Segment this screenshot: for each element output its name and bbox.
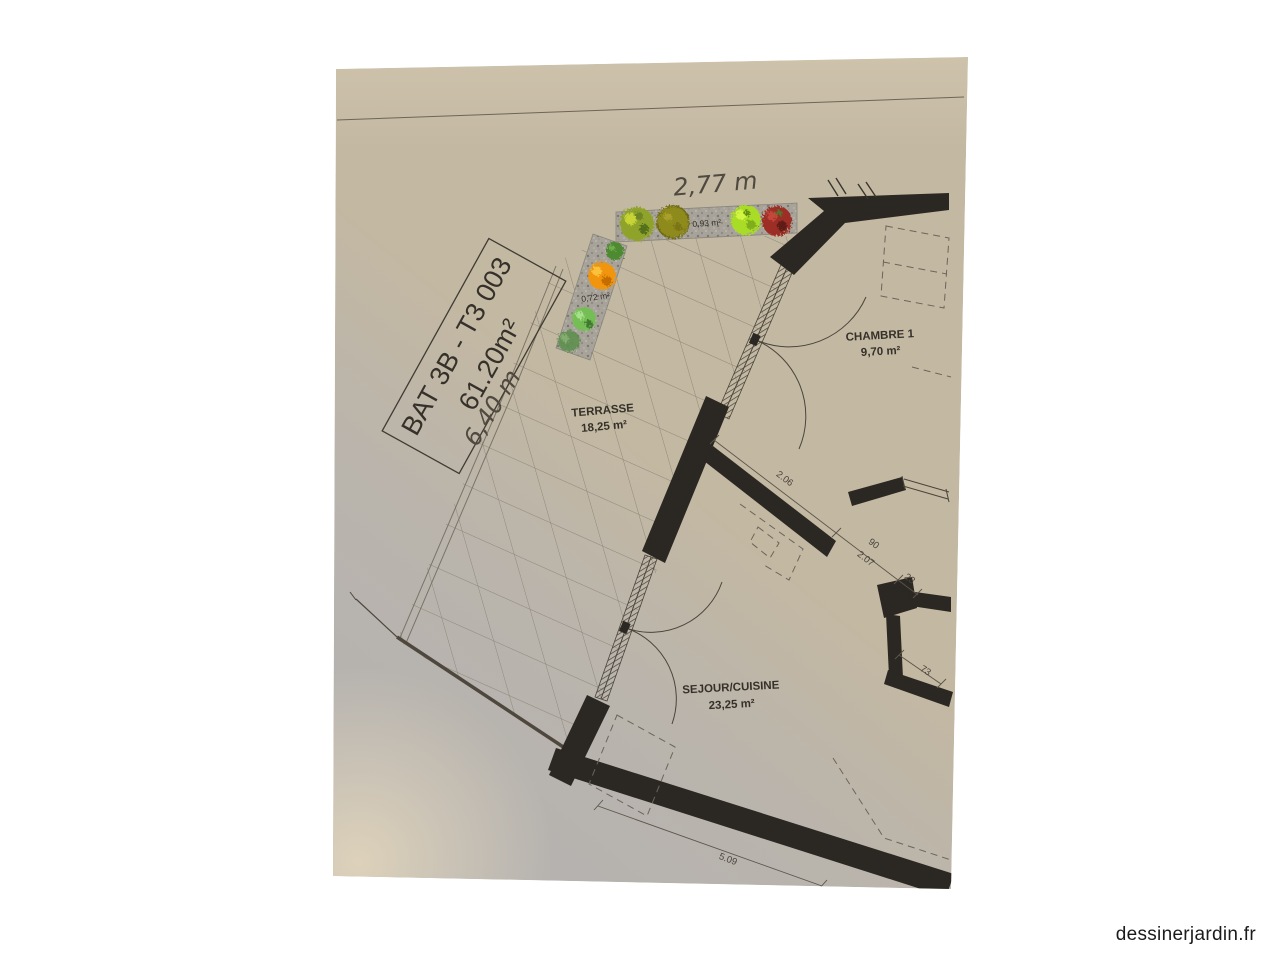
plant-darkgreen-icon bbox=[558, 330, 580, 352]
plant-small-green-icon bbox=[606, 242, 624, 260]
svg-text:23,25 m²: 23,25 m² bbox=[708, 698, 755, 712]
plant-tree-icon bbox=[657, 206, 689, 238]
plant-spiky-icon bbox=[731, 205, 761, 235]
plant-lightgreen-icon bbox=[572, 307, 596, 331]
page: 2.06 90 2.07 23 73 5.09 TERRASSE 18,25 m… bbox=[0, 0, 1280, 960]
plant-red-icon bbox=[762, 206, 792, 236]
svg-text:9,70 m²: 9,70 m² bbox=[861, 345, 901, 359]
watermark: dessinerjardin.fr bbox=[1116, 924, 1256, 946]
floorplan-photo: 2.06 90 2.07 23 73 5.09 TERRASSE 18,25 m… bbox=[0, 0, 1280, 960]
plant-orange-icon bbox=[588, 262, 616, 290]
paper-sheet: 2.06 90 2.07 23 73 5.09 TERRASSE 18,25 m… bbox=[330, 57, 968, 897]
plant-bush-icon bbox=[620, 207, 654, 241]
planter-label-horizontal: 0,93 m² bbox=[692, 217, 722, 229]
